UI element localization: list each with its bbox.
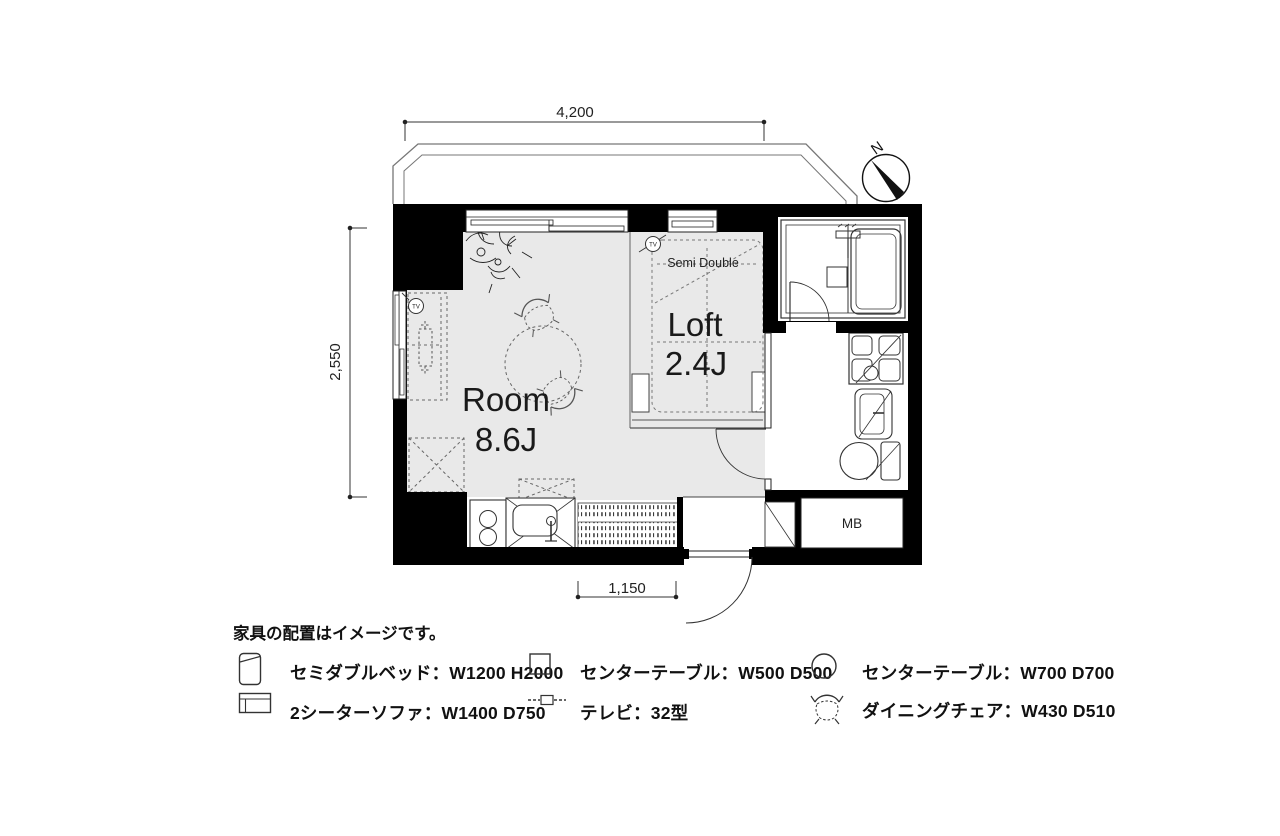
- svg-text:1,150: 1,150: [608, 580, 646, 597]
- svg-text:2,550: 2,550: [327, 343, 344, 381]
- svg-text:TV: TV: [649, 243, 657, 249]
- floor-plan: TV TV 4,200 2,550 1,150 N Room: [0, 0, 1280, 836]
- room-size-label: 8.6J: [475, 421, 537, 458]
- loft-name-label: Loft: [667, 306, 722, 343]
- window-left: [393, 291, 406, 399]
- room-name-label: Room: [462, 381, 550, 418]
- svg-text:4,200: 4,200: [556, 104, 594, 121]
- shoe-space: [765, 502, 795, 547]
- window-top-loft: [668, 210, 717, 232]
- window-top-room: [466, 210, 628, 232]
- dimension-left: 2,550: [327, 226, 367, 500]
- bathroom-door-gap: [786, 322, 836, 333]
- toilet: [840, 442, 900, 480]
- entrance-mat: [578, 503, 678, 549]
- washbasin: [855, 389, 892, 439]
- bed-size-label: Semi Double: [667, 256, 739, 270]
- entrance-door: [684, 547, 754, 623]
- compass-north-icon: N: [863, 138, 910, 201]
- svg-text:TV: TV: [412, 305, 420, 311]
- loft-partition: [765, 333, 771, 490]
- meter-box-label: MB: [842, 516, 862, 531]
- balcony: [393, 144, 857, 204]
- loft-size-label: 2.4J: [665, 345, 727, 382]
- kitchen: [470, 498, 575, 549]
- dimension-top: 4,200: [403, 104, 767, 141]
- floorplan-page: TV TV 4,200 2,550 1,150 N Room: [0, 0, 1280, 836]
- dimension-bottom: 1,150: [576, 580, 679, 599]
